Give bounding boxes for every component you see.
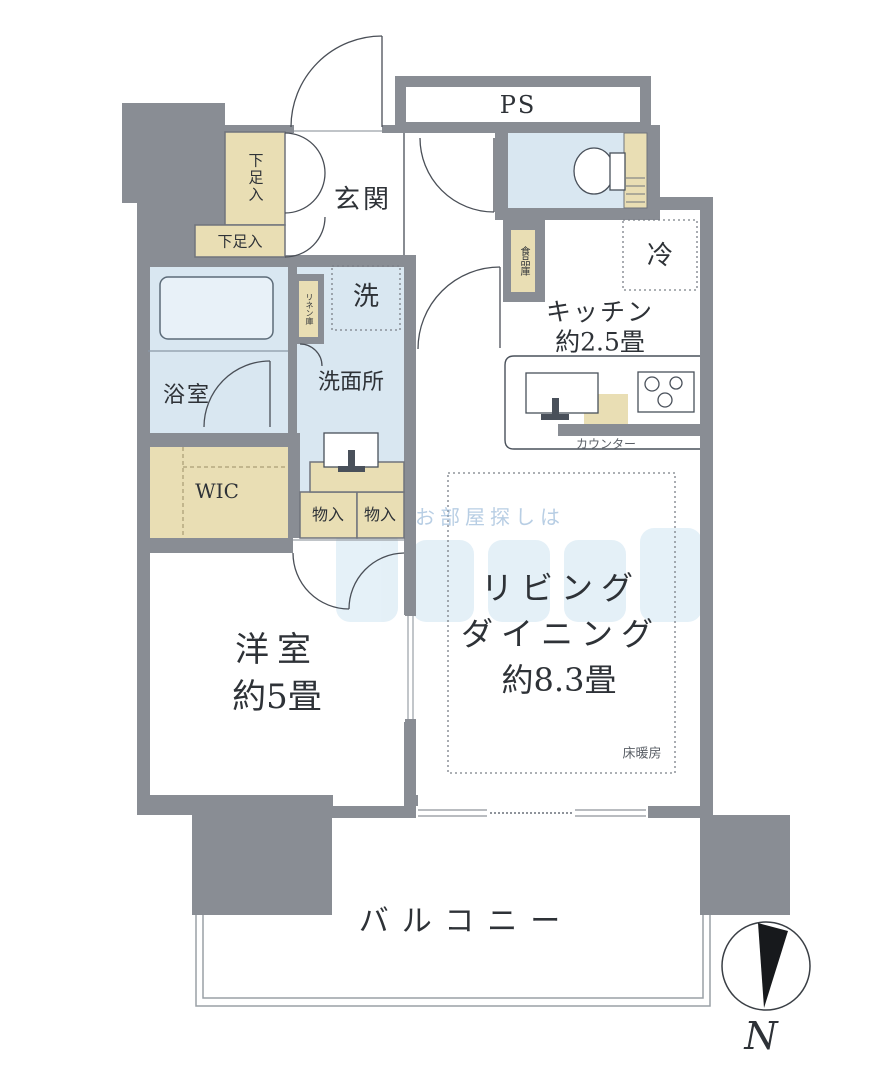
stove-icon xyxy=(638,372,694,412)
wall-pier xyxy=(382,125,396,133)
wall-right xyxy=(700,197,713,818)
wall-wic-top xyxy=(137,433,300,447)
pillar-left xyxy=(192,815,332,915)
shoe-cabinet-door-arc xyxy=(285,173,325,213)
floor-plan-page: PS 玄関 下足入 下足入 洗 リネン庫 浴室 洗面所 WIC 物入 物入 食品… xyxy=(0,0,896,1074)
vanity-faucet-base-icon xyxy=(338,466,365,472)
living-label-line3: 約8.3畳 xyxy=(502,664,617,696)
toilet-icon xyxy=(574,148,625,194)
bedroom-label-line1: 洋室 xyxy=(235,633,319,667)
toilet-shelf xyxy=(624,133,647,208)
toilet-bowl-icon xyxy=(574,148,614,194)
wall-corridor-left xyxy=(404,267,416,538)
wall-divider-foot xyxy=(404,795,418,818)
shoe-cabinet-door-arc xyxy=(285,133,325,173)
living-label-line2: ダイニング xyxy=(461,618,661,650)
wall-bedroom-top xyxy=(137,538,293,553)
bedroom-label-line2: 約5畳 xyxy=(232,680,322,714)
kitchen-door-arc xyxy=(418,267,500,349)
storage-label-2: 物入 xyxy=(364,507,396,523)
toilet-tank-icon xyxy=(610,153,625,190)
ps-label: PS xyxy=(500,93,537,117)
north-label: N xyxy=(744,1017,777,1055)
wall-toilet-left xyxy=(495,133,508,218)
kitchen-sink-icon xyxy=(526,373,598,413)
storage-label-1: 物入 xyxy=(312,507,344,523)
washer-label: 洗 xyxy=(353,284,379,310)
compass xyxy=(722,922,810,1010)
linen-label: リネン庫 xyxy=(305,293,313,325)
burner-icon xyxy=(670,377,682,389)
shoe-cabinet-door-arc xyxy=(285,217,325,257)
living-label-line1: リビング xyxy=(481,572,641,604)
sliding-partition xyxy=(405,612,416,723)
burner-icon xyxy=(645,377,659,391)
wall-left xyxy=(137,257,150,815)
wall-toilet-bottom xyxy=(495,208,660,220)
balcony-windows xyxy=(416,806,648,818)
counter-label: カウンター xyxy=(576,438,636,450)
wall-wic-right xyxy=(288,433,300,538)
balcony-label: バルコニー xyxy=(359,907,573,937)
floor-heating-label: 床暖房 xyxy=(622,748,661,761)
wall-bottom-seg1 xyxy=(330,806,408,818)
entrance-label: 玄関 xyxy=(334,187,392,213)
pillar-right xyxy=(700,815,790,915)
fridge-label: 冷 xyxy=(647,243,673,269)
kitchen-faucet-base-icon xyxy=(541,414,569,420)
washroom-label: 洗面所 xyxy=(318,372,384,394)
front-door-arc xyxy=(291,36,382,127)
kitchen-label-line2: 約2.5畳 xyxy=(555,330,645,355)
wic-label: WIC xyxy=(195,481,239,501)
bathroom-label: 浴室 xyxy=(163,385,211,407)
partition-stop xyxy=(405,612,416,616)
sliding-partition-lines xyxy=(408,615,413,722)
kitchen-label-line1: キッチン xyxy=(546,300,654,325)
watermark-text: お部屋探しは xyxy=(415,507,565,527)
shoe-cabinet-low-label: 下足入 xyxy=(217,235,262,250)
pantry-label: 食品庫 xyxy=(518,246,528,276)
partition-stop xyxy=(405,719,416,723)
wall-bedroom-bottom xyxy=(137,795,333,815)
kitchen-faucet-icon xyxy=(552,398,559,416)
shoe-cabinet-tall-label: 下足入 xyxy=(248,153,263,204)
wall-divider-lower xyxy=(404,722,416,797)
burner-icon xyxy=(658,393,672,407)
bathtub-icon xyxy=(160,277,273,339)
vanity-faucet-icon xyxy=(348,450,355,468)
kitchen-counter-wall xyxy=(558,424,713,436)
wall-divider-upper xyxy=(404,538,416,615)
hall-door-arc xyxy=(420,138,494,212)
